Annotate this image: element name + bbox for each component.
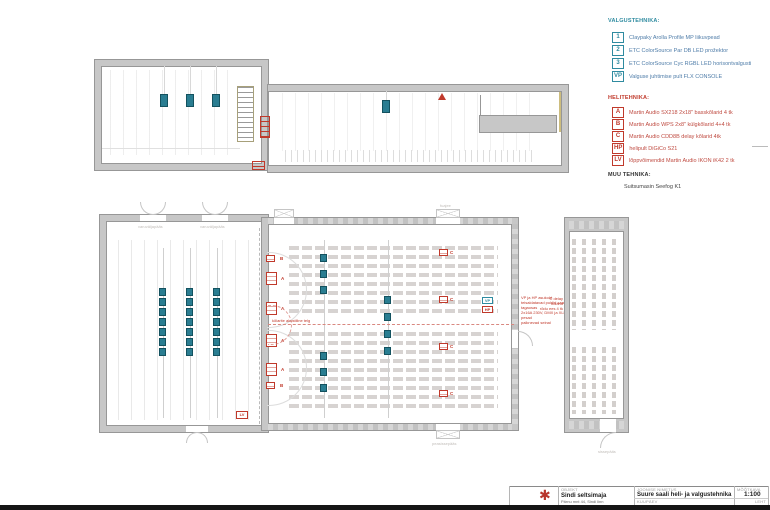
- rigging-point-triangle: [438, 93, 446, 100]
- light-fixture: [186, 298, 193, 306]
- legend-row: HP helipult DiGiCo S21: [612, 143, 677, 154]
- moving-head-fixture: [212, 94, 220, 107]
- hall-fixtures-front-upper: [320, 254, 328, 306]
- legend-key-1: 1: [612, 32, 624, 43]
- light-fixture: [320, 384, 327, 392]
- light-fixture: [213, 318, 220, 326]
- console-box-hp: HP: [482, 306, 493, 313]
- legend-label: Martin Audio WPS 2x8" külgkõlarid 4+4 tk: [629, 122, 730, 128]
- legend-label: Suitsumasin Seefog K1: [624, 184, 681, 190]
- door-swing-arc: [140, 202, 153, 215]
- console-box-vp: VP: [482, 297, 493, 304]
- door-swing-arc: [215, 202, 228, 215]
- moving-head-fixture: [382, 100, 390, 113]
- light-fixture: [213, 288, 220, 296]
- stage-batten-fixtures-2: [186, 288, 194, 358]
- light-fixture: [186, 328, 193, 336]
- sheet-bottom-bar: [0, 505, 770, 510]
- main-curtain-line: [259, 228, 260, 424]
- lv-rack-box: LV: [236, 411, 248, 419]
- stage-batten-fixtures-3: [213, 288, 221, 358]
- legend-row: Suitsumasin Seefog K1: [624, 184, 681, 190]
- hall-wall-texture-bottom: [268, 424, 512, 430]
- legend-label: Martin Audio SX218 2x18" basskõlarid 4 t…: [629, 110, 733, 116]
- stage-exit-label-right: varuväljapääs: [200, 225, 225, 229]
- section-stage-ceiling-lines: [110, 70, 230, 155]
- hall-wall-texture-top: [268, 218, 512, 224]
- legend-row: 3 ETC ColorSource Cyc RGBL LED horisontv…: [612, 58, 751, 69]
- stair-ladder: [237, 86, 254, 142]
- legend-row: B Martin Audio WPS 2x8" külgkõlarid 4+4 …: [612, 119, 730, 130]
- floor-plan-sheet: varuväljapääs varuväljapääs LV B A: [0, 0, 770, 510]
- legend-label: Claypaky Arolla Profile MP liikuvpead: [629, 35, 720, 41]
- balcony-entrance-label: sissepääs: [598, 450, 616, 454]
- legend-row: 1 Claypaky Arolla Profile MP liikuvpead: [612, 32, 720, 43]
- speaker-letter: C: [450, 391, 453, 396]
- legend-label: ETC ColorSource Cyc RGBL LED horisontval…: [629, 61, 751, 67]
- speaker-C: [439, 296, 448, 303]
- light-fixture: [186, 338, 193, 346]
- legend: VALGUSTEHNIKA: 1 Claypaky Arolla Profile…: [608, 14, 768, 194]
- title-block-divider: [509, 486, 510, 505]
- hall-door-x: [436, 430, 460, 439]
- balcony-note-line: rõdu ees 4 tk: [538, 306, 563, 311]
- stage-door-gap: [202, 215, 228, 221]
- moving-head-fixture: [160, 94, 168, 107]
- moving-head-fixture: [186, 94, 194, 107]
- light-fixture: [159, 288, 166, 296]
- wall-note-line: 2x16A 230V, DMX ja XLR pesad: [521, 310, 569, 320]
- legend-other-title: MUU TEHNIKA:: [608, 172, 651, 178]
- object-label: OBJEKT: [561, 488, 578, 492]
- light-fixture: [159, 318, 166, 326]
- light-fixture: [213, 348, 220, 356]
- legend-key-lv: LV: [612, 155, 624, 166]
- light-fixture: [320, 270, 327, 278]
- wall-note-line: paiknevad seinal: [521, 320, 569, 325]
- balcony-note-line: C delay kõlarid: [538, 296, 563, 306]
- title-block-divider: [558, 486, 559, 505]
- light-fixture: [213, 338, 220, 346]
- legend-row: LV lõppvõimendid Martin Audio IKON iK42 …: [612, 155, 734, 166]
- title-block-divider: [734, 486, 735, 505]
- door-swing-arc: [202, 202, 215, 215]
- door-swing-arc: [153, 202, 166, 215]
- legend-row: VP Valguse juhtimise pult FLX CONSOLE: [612, 71, 722, 82]
- speaker-axis-line: [268, 324, 514, 325]
- light-fixture: [384, 347, 391, 355]
- section-yellow-strip: [559, 92, 561, 132]
- door-swing-arc: [186, 432, 197, 443]
- light-fixture: [159, 328, 166, 336]
- legend-key-b: B: [612, 119, 624, 130]
- title-block-divider: [634, 486, 635, 505]
- light-fixture: [159, 348, 166, 356]
- registration-tick: [752, 146, 768, 147]
- speaker-stack-section: [260, 116, 270, 138]
- balcony-door-gap: [600, 419, 616, 432]
- light-fixture: [186, 288, 193, 296]
- legend-label: helipult DiGiCo S21: [629, 146, 677, 152]
- hall-fixtures-front-lower: [320, 352, 328, 404]
- stage-door-gap: [140, 215, 166, 221]
- light-fixture: [186, 308, 193, 316]
- light-fixture: [186, 348, 193, 356]
- light-fixture: [384, 313, 391, 321]
- light-fixture: [320, 352, 327, 360]
- hall-fixtures-mid: [384, 296, 392, 356]
- axis-note: kõlarite akustiline telg: [272, 318, 310, 323]
- fixture-hang-line: [164, 66, 165, 94]
- stage-exit-label-left: varuväljapääs: [138, 225, 163, 229]
- section-stage-floor-line: [102, 148, 240, 149]
- legend-label: Valguse juhtimise pult FLX CONSOLE: [629, 74, 722, 80]
- hall-seats-lower: [286, 332, 498, 408]
- hall-door-x: [436, 209, 460, 218]
- light-fixture: [213, 298, 220, 306]
- speaker-C: [439, 343, 448, 350]
- date-label: KUUPÄEV: [637, 500, 658, 504]
- light-fixture: [213, 328, 220, 336]
- legend-key-vp: VP: [612, 71, 624, 82]
- light-fixture: [159, 338, 166, 346]
- legend-key-a: A: [612, 107, 624, 118]
- balcony-wall-texture-top: [569, 221, 624, 229]
- fixture-hang-line: [190, 66, 191, 94]
- scale-value: 1:100: [744, 492, 761, 498]
- section-step-wall: [480, 116, 556, 132]
- speaker-letter: C: [450, 297, 453, 302]
- legend-key-2: 2: [612, 45, 624, 56]
- hall-door-x: [274, 209, 294, 218]
- legend-lighting-title: VALGUSTEHNIKA:: [608, 18, 660, 24]
- hall-seats-upper: [286, 246, 498, 318]
- drawing-name: Suure saali heli- ja valgustehnika: [637, 492, 731, 498]
- stage-batten-fixtures-1: [159, 288, 167, 358]
- fixture-hang-line: [216, 66, 217, 94]
- hall-door-gap: [436, 218, 460, 224]
- section-seat-ticks: [285, 150, 535, 162]
- object-address: Pärnu mnt 44, Sindi linn: [561, 500, 603, 504]
- speaker-C: [439, 390, 448, 397]
- light-fixture: [213, 308, 220, 316]
- light-fixture: [384, 296, 391, 304]
- speaker-letter: C: [450, 250, 453, 255]
- light-fixture: [320, 368, 327, 376]
- legend-label: lõppvõimendid Martin Audio IKON iK42 2 t…: [629, 158, 734, 164]
- light-fixture: [159, 308, 166, 316]
- section-step-post: [480, 95, 481, 116]
- door-swing-arc: [197, 432, 208, 443]
- speaker-C: [439, 249, 448, 256]
- legend-row: 2 ETC ColorSource Par DB LED prožektor: [612, 45, 728, 56]
- legend-audio-title: HELITEHNIKA:: [608, 95, 649, 101]
- legend-key-3: 3: [612, 58, 624, 69]
- legend-label: Martin Audio CDD8B delay kõlarid 4tk: [629, 134, 721, 140]
- hall-door-gap: [274, 218, 294, 224]
- light-fixture: [159, 298, 166, 306]
- hall-entrance-label: peasissepääs: [432, 442, 456, 446]
- legend-key-hp: HP: [612, 143, 624, 154]
- light-fixture: [320, 254, 327, 262]
- sheet-label: LEHT: [755, 500, 766, 504]
- light-fixture: [320, 286, 327, 294]
- speaker-letter: C: [450, 344, 453, 349]
- balcony-note: C delay kõlarid rõdu ees 4 tk: [538, 296, 563, 311]
- door-swing-arc: [600, 432, 616, 448]
- legend-row: A Martin Audio SX218 2x18" basskõlarid 4…: [612, 107, 733, 118]
- legend-row: C Martin Audio CDD8B delay kõlarid 4tk: [612, 131, 721, 142]
- legend-label: ETC ColorSource Par DB LED prožektor: [629, 48, 728, 54]
- light-fixture: [384, 330, 391, 338]
- light-fixture: [186, 318, 193, 326]
- balcony-seats: [572, 236, 621, 414]
- balcony-mid-aisle: [572, 330, 621, 346]
- hall-top-door-label: fuajee: [440, 204, 451, 208]
- title-block-divider: [768, 486, 769, 505]
- amp-rack-section: [252, 161, 265, 170]
- door-swing-arc: [518, 331, 533, 346]
- company-logo: ✱: [539, 488, 551, 502]
- legend-key-c: C: [612, 131, 624, 142]
